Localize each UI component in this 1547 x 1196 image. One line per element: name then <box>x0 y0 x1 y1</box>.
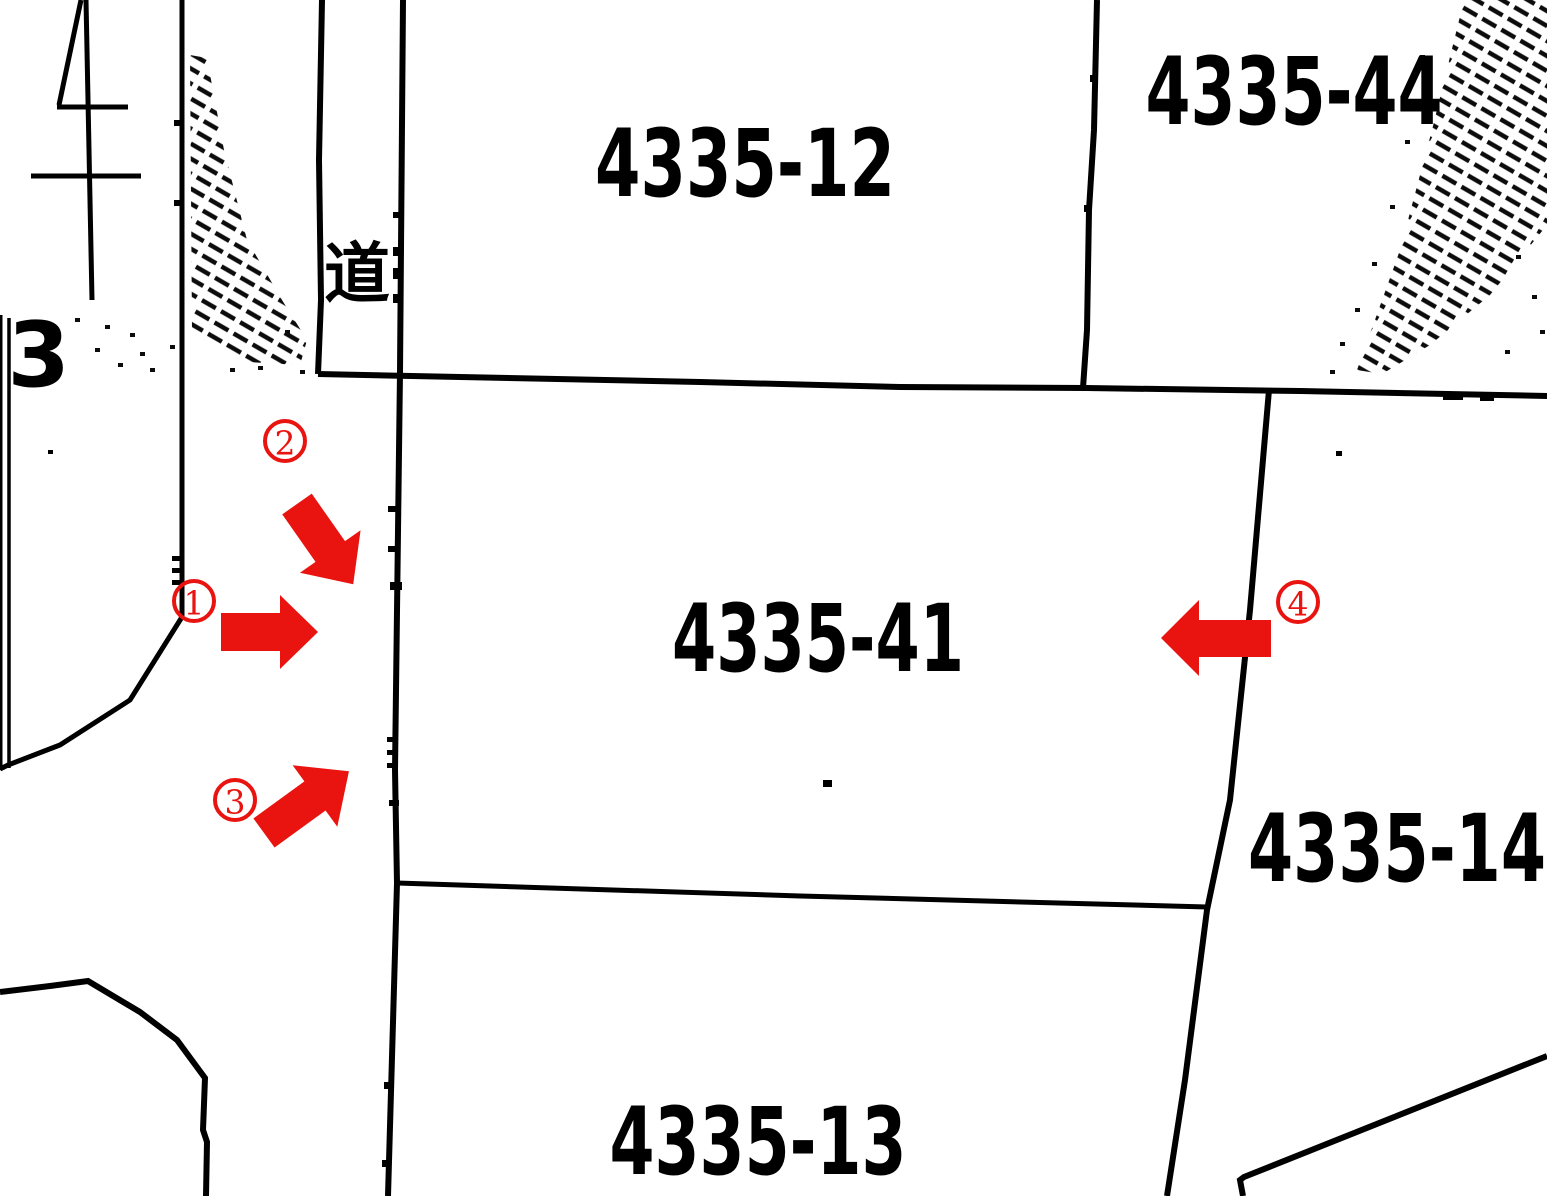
left-edge-parcel-label: -3 <box>0 303 70 408</box>
parcel-label-4335-12: 4335-12 <box>595 110 895 219</box>
marker-1-number: 1 <box>184 584 205 623</box>
marker-2-number: 2 <box>275 424 296 463</box>
dot-in-parcel-14 <box>1336 451 1342 456</box>
cadastral-map-svg: 4335-12 4335-44 4335-41 4335-14 4335-13 … <box>0 0 1547 1196</box>
road-left-line <box>318 0 322 374</box>
cadastral-map: 4335-12 4335-44 4335-41 4335-14 4335-13 … <box>0 0 1547 1196</box>
parcel-label-4335-14: 4335-14 <box>1248 795 1546 904</box>
dot-in-parcel-41 <box>823 780 832 787</box>
marker-3-number: 3 <box>225 783 246 822</box>
marker-4-number: 4 <box>1288 585 1309 624</box>
parcel-label-4335-13: 4335-13 <box>610 1088 907 1196</box>
parcel-label-4335-44: 4335-44 <box>1146 38 1443 147</box>
dot-left-area <box>48 450 53 454</box>
parcel-label-4335-41: 4335-41 <box>672 585 964 694</box>
road-label: 道 <box>324 236 390 313</box>
